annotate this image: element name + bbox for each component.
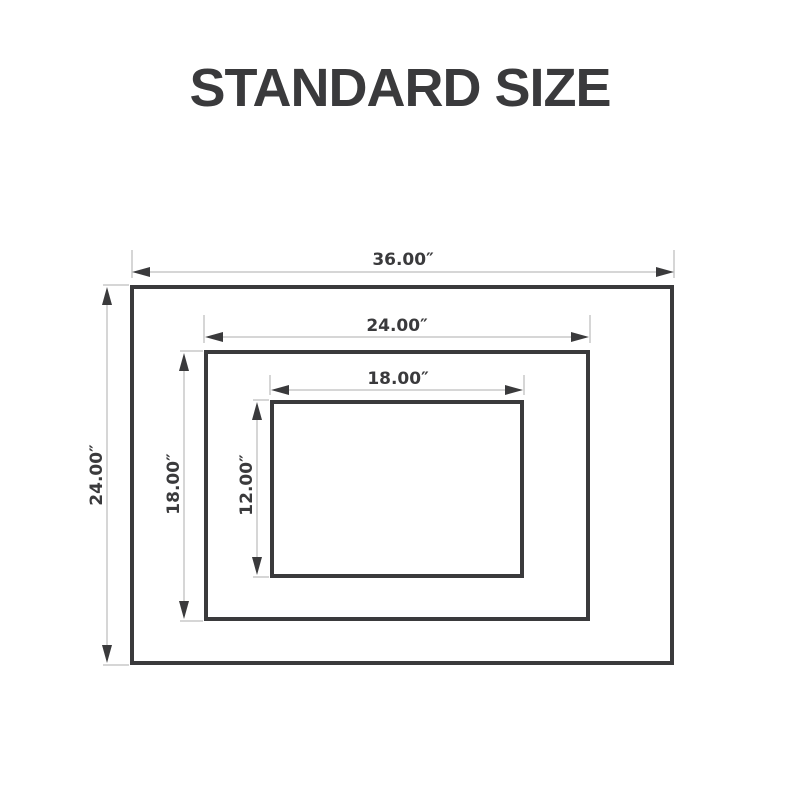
arrow-up-icon [102, 287, 112, 305]
dimension-outer-height: 24.00″ [87, 285, 129, 665]
arrow-down-icon [102, 645, 112, 663]
page-title: STANDARD SIZE [189, 58, 610, 118]
arrow-left-icon [205, 332, 223, 342]
dimension-inner-width: 18.00″ [270, 369, 524, 395]
arrow-right-icon [571, 332, 589, 342]
inner-rectangle [272, 402, 522, 576]
dimension-label-outer-width: 36.00″ [372, 250, 434, 270]
arrow-left-icon [271, 385, 289, 395]
dimension-label-inner-width: 18.00″ [367, 369, 429, 389]
middle-rectangle [206, 352, 588, 619]
arrow-right-icon [505, 385, 523, 395]
dimension-label-outer-height: 24.00″ [87, 444, 107, 506]
outer-rectangle [132, 287, 672, 663]
arrow-right-icon [656, 267, 674, 277]
arrow-down-icon [179, 601, 189, 619]
dimension-label-middle-height: 18.00″ [164, 453, 184, 515]
dimension-middle-height: 18.00″ [164, 351, 203, 621]
dimension-label-middle-width: 24.00″ [366, 316, 428, 336]
arrow-up-icon [252, 402, 262, 420]
standard-size-page: STANDARD SIZE 36.00″ 24.00″ [0, 0, 800, 800]
arrow-up-icon [179, 353, 189, 371]
dimension-inner-height: 12.00″ [237, 400, 269, 577]
dimension-middle-width: 24.00″ [204, 315, 590, 343]
dimension-outer-width: 36.00″ [132, 250, 674, 278]
dimension-label-inner-height: 12.00″ [237, 454, 257, 516]
arrow-down-icon [252, 557, 262, 575]
standard-size-diagram: STANDARD SIZE 36.00″ 24.00″ [0, 0, 800, 800]
arrow-left-icon [132, 267, 150, 277]
